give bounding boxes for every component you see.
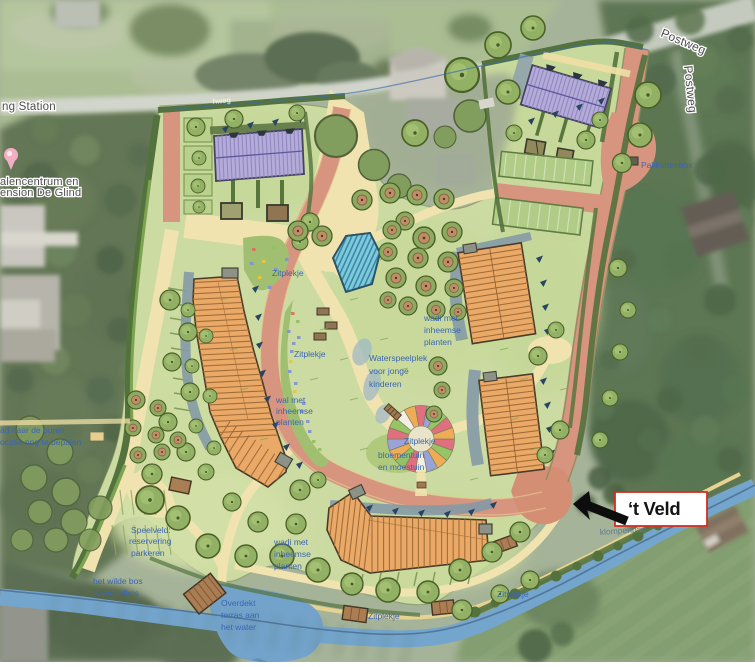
svg-text:hweg: hweg xyxy=(212,95,231,106)
svg-text:Zitplekje: Zitplekje xyxy=(368,611,400,621)
svg-text:ocatie nog te bepalen: ocatie nog te bepalen xyxy=(0,437,82,447)
svg-text:voedselbos: voedselbos xyxy=(96,588,139,598)
svg-text:terras aan: terras aan xyxy=(221,610,260,620)
svg-text:wadi met: wadi met xyxy=(423,313,459,323)
svg-text:planten: planten xyxy=(424,337,452,347)
svg-text:Zitplekje: Zitplekje xyxy=(404,436,436,446)
svg-text:reservering: reservering xyxy=(129,536,172,546)
svg-text:parkeren: parkeren xyxy=(131,548,165,558)
svg-text:Speelveld:: Speelveld: xyxy=(131,525,171,535)
svg-text:planten: planten xyxy=(276,417,304,427)
svg-text:Waterspeelplek: Waterspeelplek xyxy=(369,353,428,363)
svg-text:Zitplekje: Zitplekje xyxy=(294,349,326,359)
svg-text:inheemse: inheemse xyxy=(424,325,461,335)
svg-text:ad naar de buren: ad naar de buren xyxy=(0,425,65,435)
svg-text:wal met: wal met xyxy=(275,395,306,405)
svg-text:en moestuin: en moestuin xyxy=(378,462,425,472)
svg-text:Overdekt: Overdekt xyxy=(221,598,256,608)
svg-text:inheemse: inheemse xyxy=(276,406,313,416)
svg-text:ension De Glind: ension De Glind xyxy=(0,187,81,199)
svg-text:Zitplekje: Zitplekje xyxy=(497,589,529,599)
svg-text:planten: planten xyxy=(274,561,302,571)
svg-text:Zitplekje: Zitplekje xyxy=(272,268,304,278)
svg-text:inheemse: inheemse xyxy=(274,549,311,559)
svg-text:Pakkettenbox: Pakkettenbox xyxy=(641,160,693,170)
svg-text:het water: het water xyxy=(221,622,256,632)
svg-text:kinderen: kinderen xyxy=(369,379,402,389)
svg-text:ng Station: ng Station xyxy=(2,101,56,113)
svg-text:‘t Veld: ‘t Veld xyxy=(628,498,680,519)
svg-text:bloementuin: bloementuin xyxy=(378,450,425,460)
svg-text:het wilde bos: het wilde bos xyxy=(93,576,143,586)
svg-text:voor jonge: voor jonge xyxy=(369,366,409,376)
svg-text:wadi met: wadi met xyxy=(273,537,309,547)
